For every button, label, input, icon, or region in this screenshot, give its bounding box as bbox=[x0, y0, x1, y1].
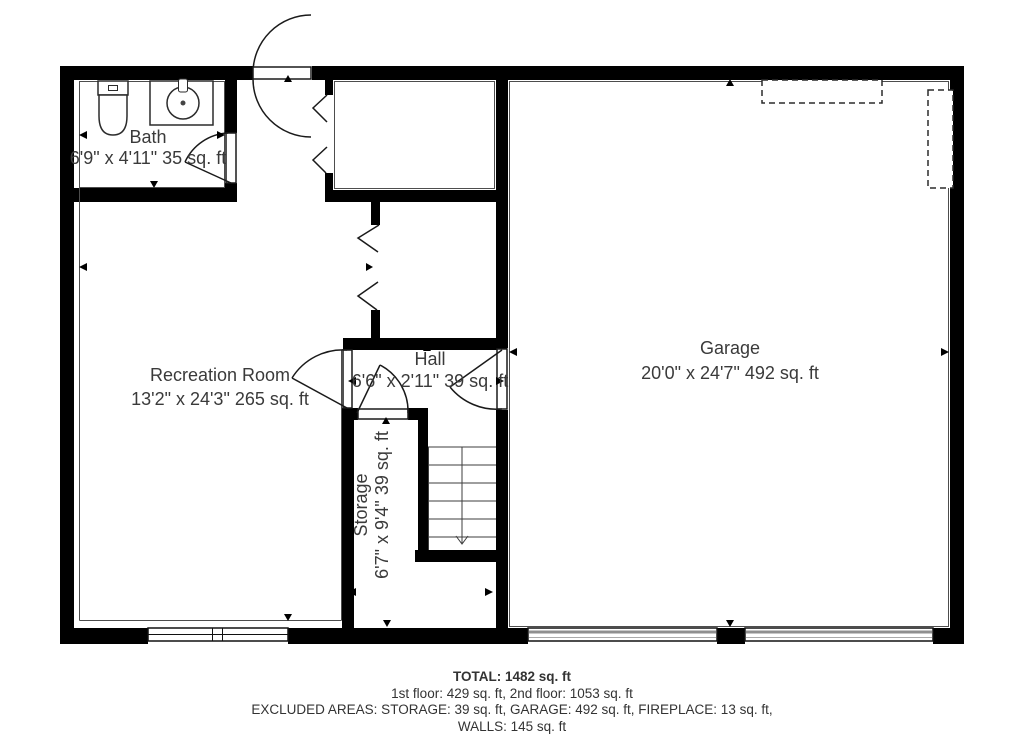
floors-area-line: 1st floor: 429 sq. ft, 2nd floor: 1053 s… bbox=[0, 686, 1024, 703]
total-area-line: TOTAL: 1482 sq. ft bbox=[0, 669, 1024, 686]
storage-name: Storage bbox=[351, 420, 372, 590]
hall-dimensions: 6'6" x 2'11" 39 sq. ft bbox=[328, 370, 532, 392]
garage-label: Garage 20'0" x 24'7" 492 sq. ft bbox=[618, 336, 842, 386]
storage-label: Storage 6'7" x 9'4" 39 sq. ft bbox=[351, 420, 395, 590]
hall-name: Hall bbox=[328, 348, 532, 370]
garage-overhead-dashed-objects bbox=[762, 80, 953, 188]
garage-dimensions: 20'0" x 24'7" 492 sq. ft bbox=[618, 361, 842, 386]
garage-name: Garage bbox=[618, 336, 842, 361]
storage-dimensions: 6'7" x 9'4" 39 sq. ft bbox=[372, 420, 393, 590]
area-summary: TOTAL: 1482 sq. ft 1st floor: 429 sq. ft… bbox=[0, 669, 1024, 735]
excluded-areas-line: EXCLUDED AREAS: STORAGE: 39 sq. ft, GARA… bbox=[0, 702, 1024, 719]
garage-door-right bbox=[745, 628, 933, 641]
floor-plan: Bath 6'9" x 4'11" 35 sq. ft Recreation R… bbox=[0, 0, 1024, 738]
bath-label: Bath 6'9" x 4'11" 35 sq. ft bbox=[38, 127, 258, 169]
garage-door-left bbox=[528, 628, 717, 641]
recreation-window bbox=[148, 628, 288, 641]
stairs-icon bbox=[428, 447, 496, 550]
hall-label: Hall 6'6" x 2'11" 39 sq. ft bbox=[328, 348, 532, 392]
entry-door bbox=[253, 15, 311, 137]
walls-area-line: WALLS: 145 sq. ft bbox=[0, 719, 1024, 736]
bath-dimensions: 6'9" x 4'11" 35 sq. ft bbox=[38, 148, 258, 169]
sink-icon bbox=[150, 79, 213, 125]
wall-opening-symbols bbox=[313, 95, 379, 310]
bath-name: Bath bbox=[38, 127, 258, 148]
